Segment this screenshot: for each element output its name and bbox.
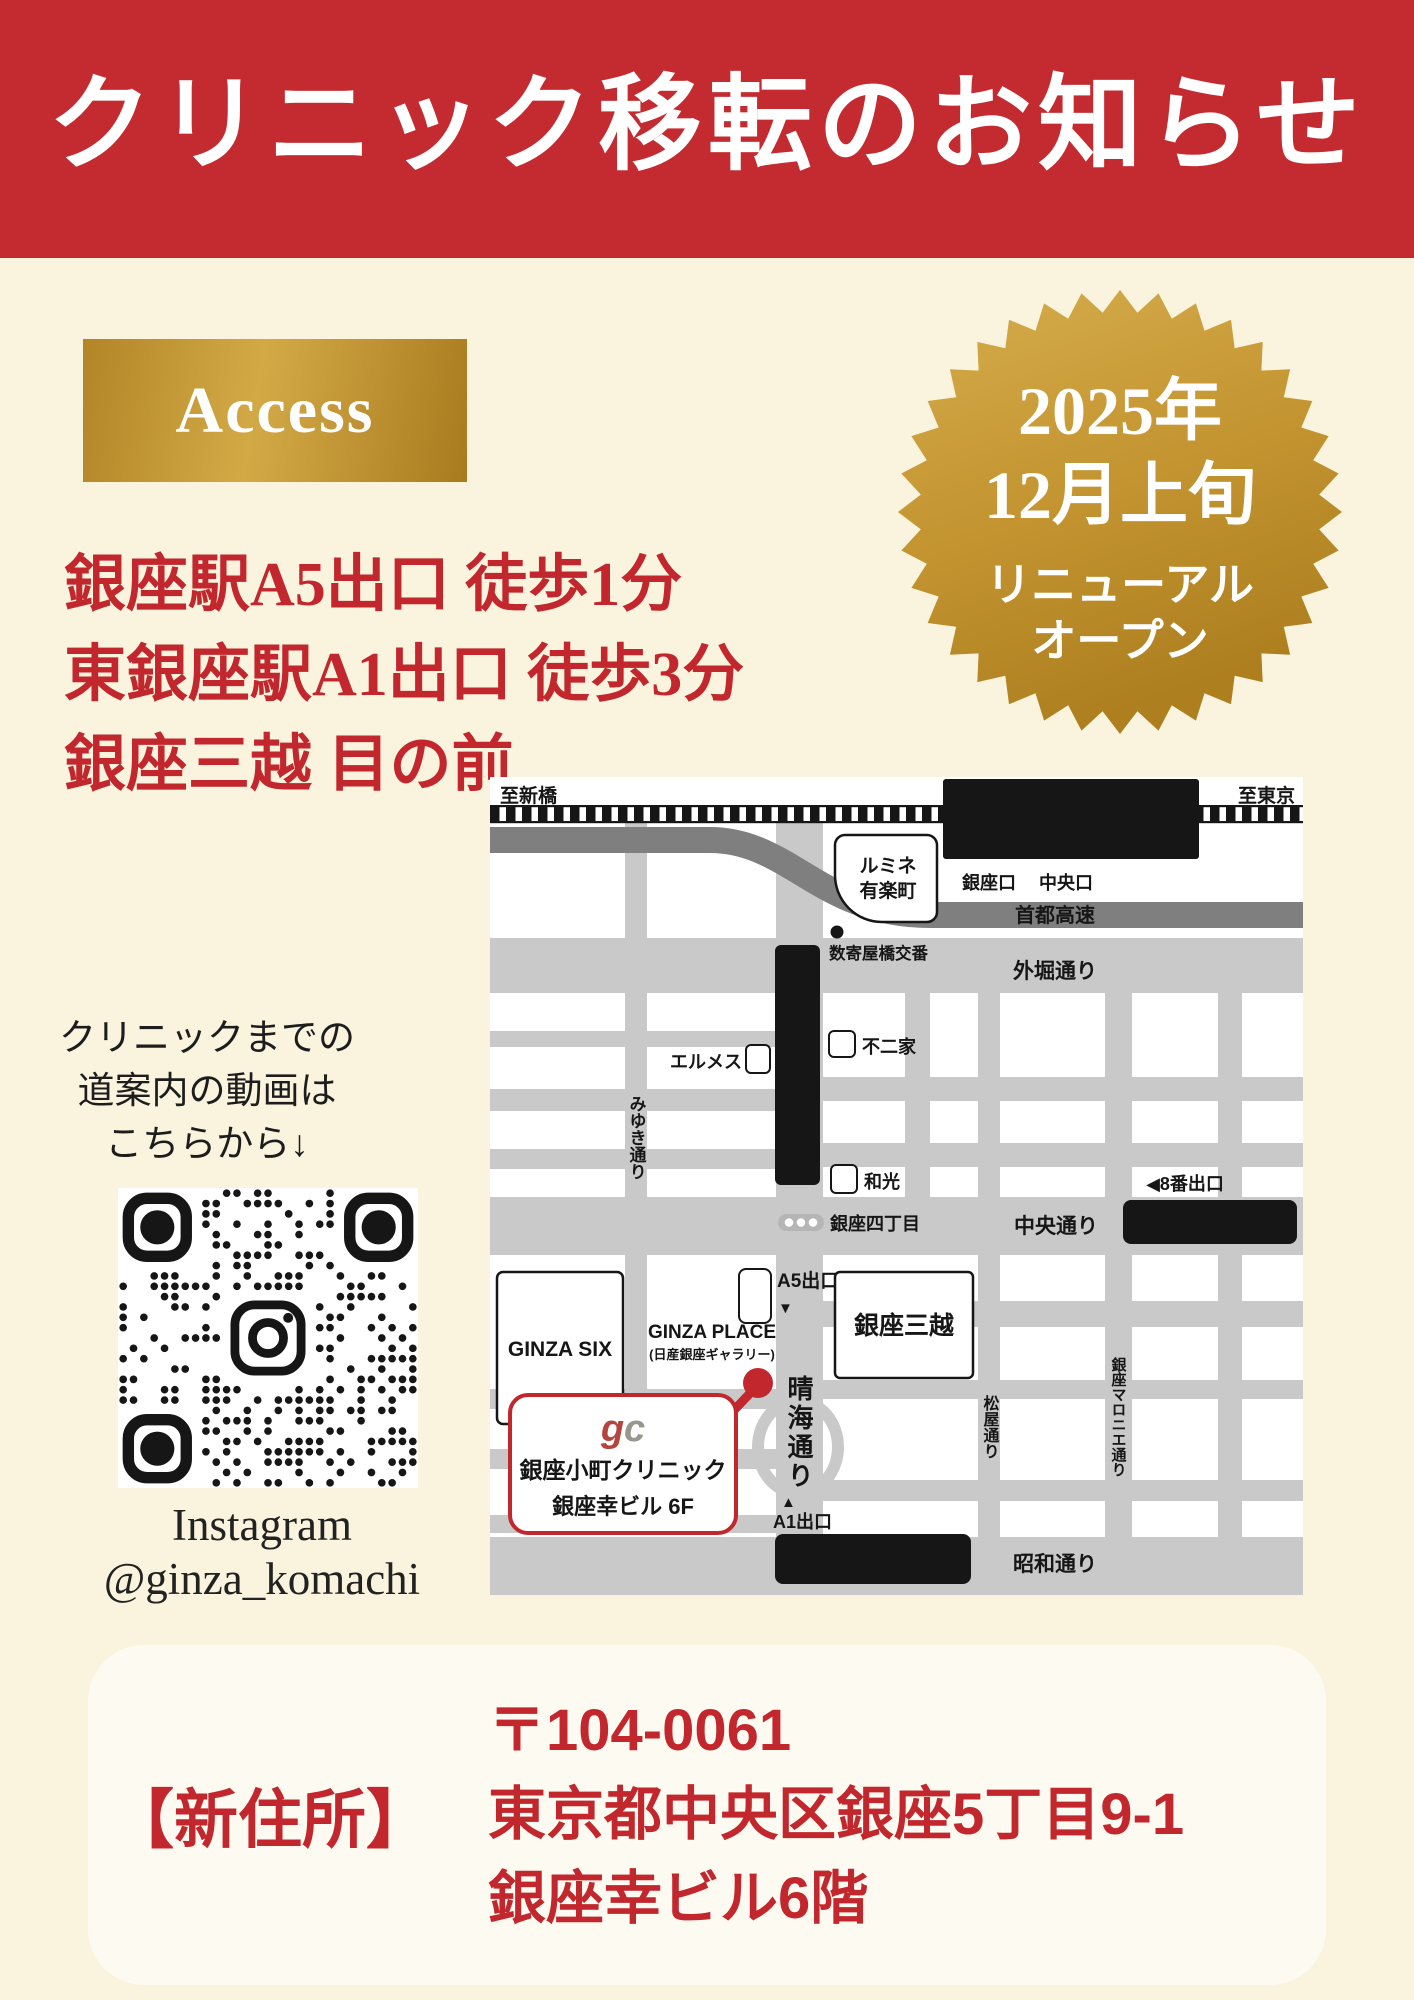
label-expressway: 首都高速	[1015, 903, 1095, 927]
access-line-2: 東銀座駅A1出口 徒歩3分	[64, 630, 894, 720]
guide-line-1: クリニックまでの	[27, 1012, 387, 1065]
label-ginza-4chome: 銀座四丁目	[830, 1213, 920, 1234]
access-badge-label: Access	[176, 373, 375, 449]
page-title: クリニック移転のお知らせ	[0, 0, 1414, 252]
a5-arrow-icon: ▼	[778, 1300, 793, 1317]
guide-line-3: こちらから↓	[27, 1118, 387, 1171]
label-a1-exit: A1出口	[773, 1511, 832, 1532]
seal-renewal: リニューアル	[986, 560, 1254, 610]
clinic-building: 銀座幸ビル 6F	[552, 1494, 694, 1519]
label-marronnier-dori: 銀座マロニエ通り	[1110, 1356, 1128, 1477]
label-exit8: ◀8番出口	[1146, 1173, 1224, 1194]
access-line-1: 銀座駅A5出口 徒歩1分	[64, 540, 894, 630]
label-a5-exit: A5出口	[777, 1269, 839, 1292]
label-ginza-itchome-station: 銀座一丁目駅	[1138, 1209, 1282, 1237]
video-guide-text: クリニックまでの 道案内の動画は こちらから↓	[27, 1012, 387, 1171]
label-fujiya: 不二家	[862, 1036, 917, 1057]
label-hermes: エルメス	[670, 1052, 742, 1072]
label-ginza-place-1: GINZA PLACE	[648, 1322, 776, 1343]
a1-arrow-icon: ▲	[781, 1494, 796, 1511]
a5-exit-box	[739, 1269, 771, 1323]
label-higashi-ginza-station: 東銀座駅	[823, 1546, 923, 1575]
label-showa-dori: 昭和通り	[1013, 1553, 1097, 1576]
label-chuo-exit: 中央口	[1039, 872, 1093, 893]
postal-code: 〒104-0061	[488, 1689, 1184, 1773]
reopen-date-seal: 2025年 12月上旬 リニューアル オープン	[896, 288, 1344, 736]
qr-image	[118, 1188, 418, 1488]
label-yurakucho-station: 有楽町駅	[1003, 803, 1139, 841]
new-address-label: 【新住所】	[110, 1769, 430, 1861]
label-lumine-2: 有楽町	[859, 879, 916, 902]
label-matsuya-dori: 松屋通り	[981, 1394, 1000, 1459]
instagram-logo-icon	[224, 1294, 313, 1383]
label-lumine-1: ルミネ	[859, 855, 916, 877]
header-band: クリニック移転のお知らせ	[0, 0, 1414, 258]
label-koban: 数寄屋橋交番	[829, 943, 929, 963]
clinic-logo: gc	[600, 1408, 645, 1450]
building-line: 銀座幸ビル6階	[488, 1857, 1184, 1941]
fujiya-box	[829, 1031, 855, 1057]
label-sotobori-dori: 外堀通り	[1013, 959, 1097, 983]
label-chuo-dori: 中央通り	[1014, 1215, 1098, 1238]
new-address-lines: 〒104-0061 東京都中央区銀座5丁目9-1 銀座幸ビル6階	[488, 1689, 1184, 1941]
instagram-handle: @ginza_komachi	[62, 1552, 462, 1606]
label-mitsukoshi: 銀座三越	[854, 1311, 955, 1340]
access-badge: Access	[83, 339, 467, 482]
clinic-name: 銀座小町クリニック	[520, 1457, 727, 1483]
label-wako: 和光	[864, 1171, 900, 1192]
label-ginza-six: GINZA SIX	[508, 1338, 612, 1361]
instagram-label: Instagram	[62, 1498, 462, 1552]
lumine-box	[835, 835, 937, 922]
ginza-area-map: 至新橋 至東京 有楽町駅 銀座口 中央口 ルミネ 有楽町 首都高速 数寄屋橋交番…	[490, 777, 1303, 1595]
seal-month: 12月上旬	[984, 457, 1256, 533]
access-info: 銀座駅A5出口 徒歩1分 東銀座駅A1出口 徒歩3分 銀座三越 目の前	[64, 540, 894, 810]
address-line: 東京都中央区銀座5丁目9-1	[488, 1773, 1184, 1857]
koban-dot	[831, 926, 844, 939]
guide-line-2: 道案内の動画は	[27, 1065, 387, 1118]
instagram-caption: Instagram @ginza_komachi	[62, 1498, 462, 1606]
label-to-shimbashi: 至新橋	[500, 784, 558, 807]
ginza4-dots	[785, 1218, 818, 1227]
label-ginza-station: 銀座駅	[781, 1017, 816, 1125]
wako-box	[831, 1165, 857, 1193]
clinic-pin-dot	[743, 1368, 773, 1398]
new-address-box: 【新住所】 〒104-0061 東京都中央区銀座5丁目9-1 銀座幸ビル6階	[88, 1645, 1326, 1985]
relocation-notice-poster: クリニック移転のお知らせ Access 銀座駅A5出口 徒歩1分 東銀座駅A1出…	[0, 0, 1414, 2000]
label-harumi-dori: 晴海通り	[784, 1375, 814, 1491]
label-ginza-place-2: (日産銀座ギャラリー)	[649, 1347, 775, 1362]
label-miyuki-dori: みゆき通り	[627, 1095, 647, 1180]
label-to-tokyo: 至東京	[1238, 784, 1295, 807]
seal-open: オープン	[1031, 616, 1208, 666]
label-ginza-exit: 銀座口	[962, 872, 1016, 893]
seal-year: 2025年	[1018, 373, 1222, 449]
instagram-qr-code	[118, 1188, 418, 1488]
hermes-box	[746, 1045, 770, 1073]
